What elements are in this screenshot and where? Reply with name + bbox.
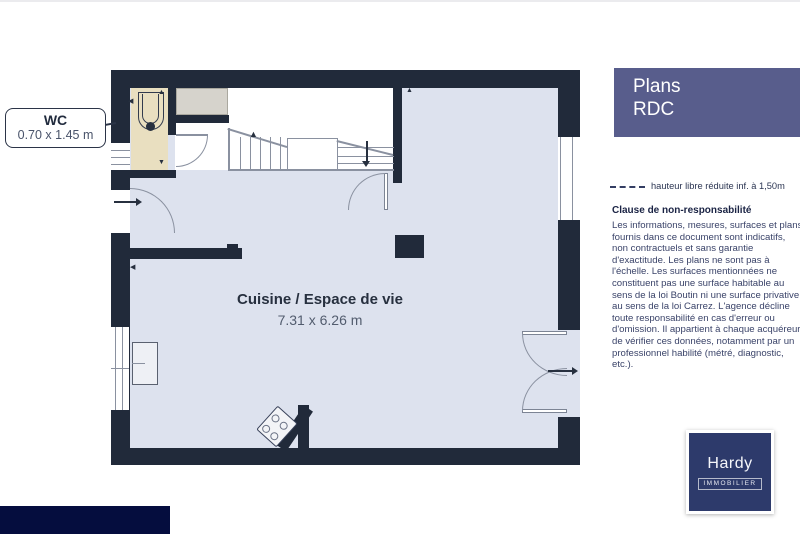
stair-tread — [280, 137, 281, 170]
landing-line — [287, 138, 337, 139]
kitchen-island-wall — [128, 248, 242, 259]
stair-tread — [250, 137, 251, 170]
burner-icon — [278, 421, 289, 432]
window-frame-line — [111, 368, 129, 369]
stairs-bottom-line — [228, 169, 394, 171]
legend-label: hauteur libre réduite inf. à 1,50m — [651, 181, 785, 191]
top-divider — [0, 0, 800, 2]
legend-dash-symbol — [610, 186, 645, 188]
wc-label: WC — [6, 112, 105, 128]
landing-line — [337, 138, 338, 170]
floor-plan: ◀ ▲ ▼ ◀ ▲ ▲ — [111, 70, 580, 465]
stair-side-wall — [393, 88, 402, 183]
plan-title-box: Plans RDC — [614, 68, 800, 137]
room-dimensions: 7.31 x 6.26 m — [170, 312, 470, 328]
room-label-group: Cuisine / Espace de vie 7.31 x 6.26 m — [170, 291, 470, 328]
stairs-left-edge — [228, 128, 230, 170]
agency-subtitle: IMMOBILIER — [698, 478, 761, 490]
column-block — [395, 235, 424, 258]
disclaimer-body: Les informations, mesures, surfaces et p… — [612, 220, 800, 371]
disclaimer-title: Clause de non-responsabilité — [612, 205, 751, 216]
stairs-down-arrow-icon — [362, 161, 370, 167]
stairs-down-arrow-line — [366, 141, 368, 162]
entry-door-opening — [111, 190, 130, 233]
arrow-up-small-icon: ▲ — [406, 87, 413, 94]
plan-title-line2: RDC — [633, 98, 800, 121]
plan-title-line1: Plans — [633, 75, 800, 98]
wc-callout: WC 0.70 x 1.45 m — [5, 108, 106, 148]
room-name: Cuisine / Espace de vie — [170, 291, 470, 308]
french-door-arrow-line — [548, 370, 573, 372]
window-frame-line — [572, 137, 573, 220]
cabinet-handle-line — [132, 363, 145, 364]
agency-logo: Hardy IMMOBILIER — [686, 430, 774, 514]
arrow-left-icon: ◀ — [128, 98, 133, 105]
arrow-down-icon: ▼ — [158, 159, 165, 166]
burner-icon — [269, 431, 280, 442]
window-right — [558, 137, 580, 220]
window-frame-line — [111, 157, 130, 158]
window-frame-line — [111, 150, 130, 151]
wc-bottom-wall — [111, 170, 176, 178]
wc-right-wall — [168, 88, 176, 135]
toilet-dot-icon — [146, 122, 155, 131]
floor-plan-page: ◀ ▲ ▼ ◀ ▲ ▲ — [0, 0, 800, 534]
french-door-arrow-icon — [572, 367, 578, 375]
closet — [176, 88, 228, 115]
stair-tread — [240, 137, 241, 170]
arrow-left-small-icon: ◀ — [130, 264, 135, 271]
agency-name: Hardy — [707, 455, 752, 473]
burner-icon — [270, 413, 281, 424]
window-frame-line — [560, 137, 561, 220]
stairs-up-arrow-icon: ▲ — [249, 130, 258, 139]
stair-tread — [260, 137, 261, 170]
landing-line — [287, 138, 288, 170]
burner-icon — [260, 423, 271, 434]
kitchen-island-bump — [227, 244, 238, 248]
arrow-up-icon: ▲ — [158, 89, 165, 96]
window-frame-line — [111, 164, 130, 165]
closet-wall — [173, 115, 229, 123]
footer-bar — [0, 506, 170, 534]
toilet-bowl-icon — [142, 94, 159, 124]
wc-dimensions: 0.70 x 1.45 m — [6, 128, 105, 143]
